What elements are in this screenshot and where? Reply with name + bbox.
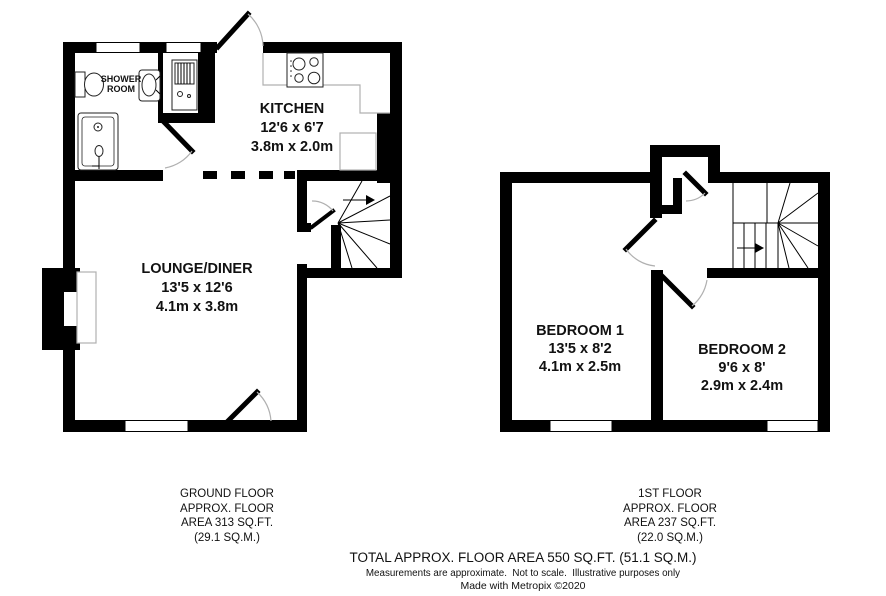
stairs-direction-arrow (366, 195, 375, 205)
sink-icon (139, 70, 160, 101)
first-floor-area-line2: APPROX. FLOOR (623, 503, 717, 515)
window (96, 43, 140, 53)
window (125, 421, 188, 432)
floorplan-canvas: SHOWER ROOM KITCHEN 12'6 x 6'7 3.8m x 2.… (0, 0, 886, 596)
total-area-label: TOTAL APPROX. FLOOR AREA 550 SQ.FT. (51.… (349, 550, 696, 565)
bedroom-2-dims-metric: 2.9m x 2.4m (701, 378, 783, 394)
bedroom-2-label: BEDROOM 2 (698, 342, 786, 358)
bedroom-2-dims-imperial: 9'6 x 8' (718, 360, 765, 376)
stairs-direction-arrow (755, 243, 764, 253)
toilet-icon (75, 72, 104, 97)
window (550, 421, 612, 432)
first-floor-area-line3: AREA 237 SQ.FT. (624, 517, 716, 529)
ground-floor-walls (42, 42, 402, 432)
hob-icon (287, 53, 323, 87)
bedroom-1-door (626, 221, 655, 266)
bedroom-1-dims-imperial: 13'5 x 8'2 (548, 341, 611, 357)
shower-room-label-line2: ROOM (107, 84, 135, 94)
disclaimer-label: Measurements are approximate. Not to sca… (366, 568, 680, 579)
kitchen-dims-imperial: 12'6 x 6'7 (260, 120, 323, 136)
kitchen-dims-metric: 3.8m x 2.0m (251, 139, 333, 155)
lounge-diner-dims-imperial: 13'5 x 12'6 (161, 280, 232, 296)
lounge-rear-door (226, 392, 271, 423)
credit-label: Made with Metropix ©2020 (460, 580, 585, 592)
entry-door (218, 14, 263, 47)
ground-floor-area-line2: APPROX. FLOOR (180, 503, 274, 515)
stairs-icon-first (733, 183, 818, 268)
bedroom-1-dims-metric: 4.1m x 2.5m (539, 359, 621, 375)
stairs-door (312, 201, 333, 227)
first-floor-area-line1: 1ST FLOOR (638, 488, 702, 500)
lounge-diner-dims-metric: 4.1m x 3.8m (156, 299, 238, 315)
first-floor-plan: BEDROOM 1 13'5 x 8'2 4.1m x 2.5m BEDROOM… (500, 145, 830, 432)
floorplan-page: SHOWER ROOM KITCHEN 12'6 x 6'7 3.8m x 2.… (0, 0, 886, 596)
bedroom-1-label: BEDROOM 1 (536, 323, 624, 339)
footer-text: GROUND FLOOR APPROX. FLOOR AREA 313 SQ.F… (180, 488, 717, 592)
ground-floor-area-line1: GROUND FLOOR (180, 488, 274, 500)
shower-room-door (163, 121, 192, 168)
open-plan-divider (203, 171, 295, 179)
ground-floor-area-line3: AREA 313 SQ.FT. (181, 517, 273, 529)
shower-room-label-line1: SHOWER (101, 74, 142, 84)
kitchen-label: KITCHEN (260, 101, 324, 117)
window (767, 421, 818, 432)
lounge-diner-label: LOUNGE/DINER (141, 261, 253, 277)
ground-floor-plan: SHOWER ROOM KITCHEN 12'6 x 6'7 3.8m x 2.… (42, 14, 402, 432)
stairs-icon-ground (338, 181, 390, 268)
boiler-icon (172, 60, 197, 110)
ground-floor-area-line4: (29.1 SQ.M.) (194, 532, 260, 544)
bedroom-2-door (662, 276, 707, 306)
hearth (77, 272, 96, 343)
first-floor-area-line4: (22.0 SQ.M.) (637, 532, 703, 544)
shower-tray-icon (78, 113, 118, 170)
window (166, 43, 201, 53)
